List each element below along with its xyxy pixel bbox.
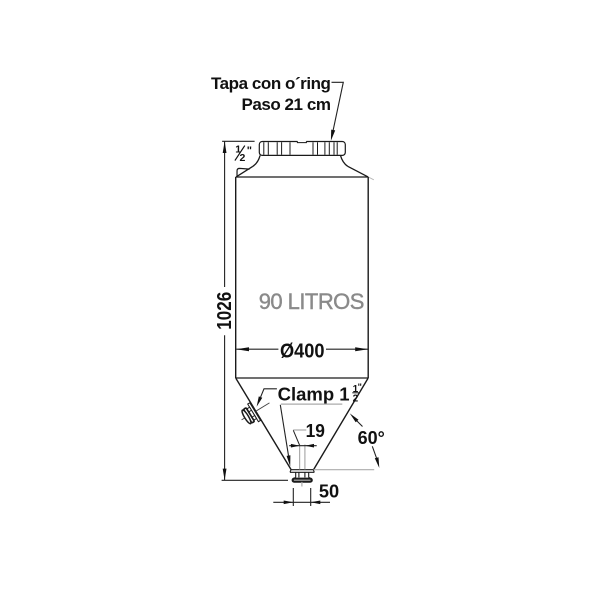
svg-text:": " xyxy=(358,382,362,392)
svg-text:2: 2 xyxy=(240,152,246,164)
svg-text:2: 2 xyxy=(353,394,359,405)
svg-text:Ø400: Ø400 xyxy=(280,340,325,363)
svg-text:Paso 21 cm: Paso 21 cm xyxy=(241,95,330,114)
svg-text:50: 50 xyxy=(319,480,339,501)
svg-text:19: 19 xyxy=(306,420,325,441)
svg-text:90 LITROS: 90 LITROS xyxy=(259,289,364,314)
svg-text:60°: 60° xyxy=(358,427,385,448)
svg-text:Tapa con o´ring: Tapa con o´ring xyxy=(211,74,331,93)
svg-text:1026: 1026 xyxy=(213,292,236,330)
svg-text:": " xyxy=(247,145,252,157)
svg-text:Clamp 1: Clamp 1 xyxy=(278,383,350,404)
